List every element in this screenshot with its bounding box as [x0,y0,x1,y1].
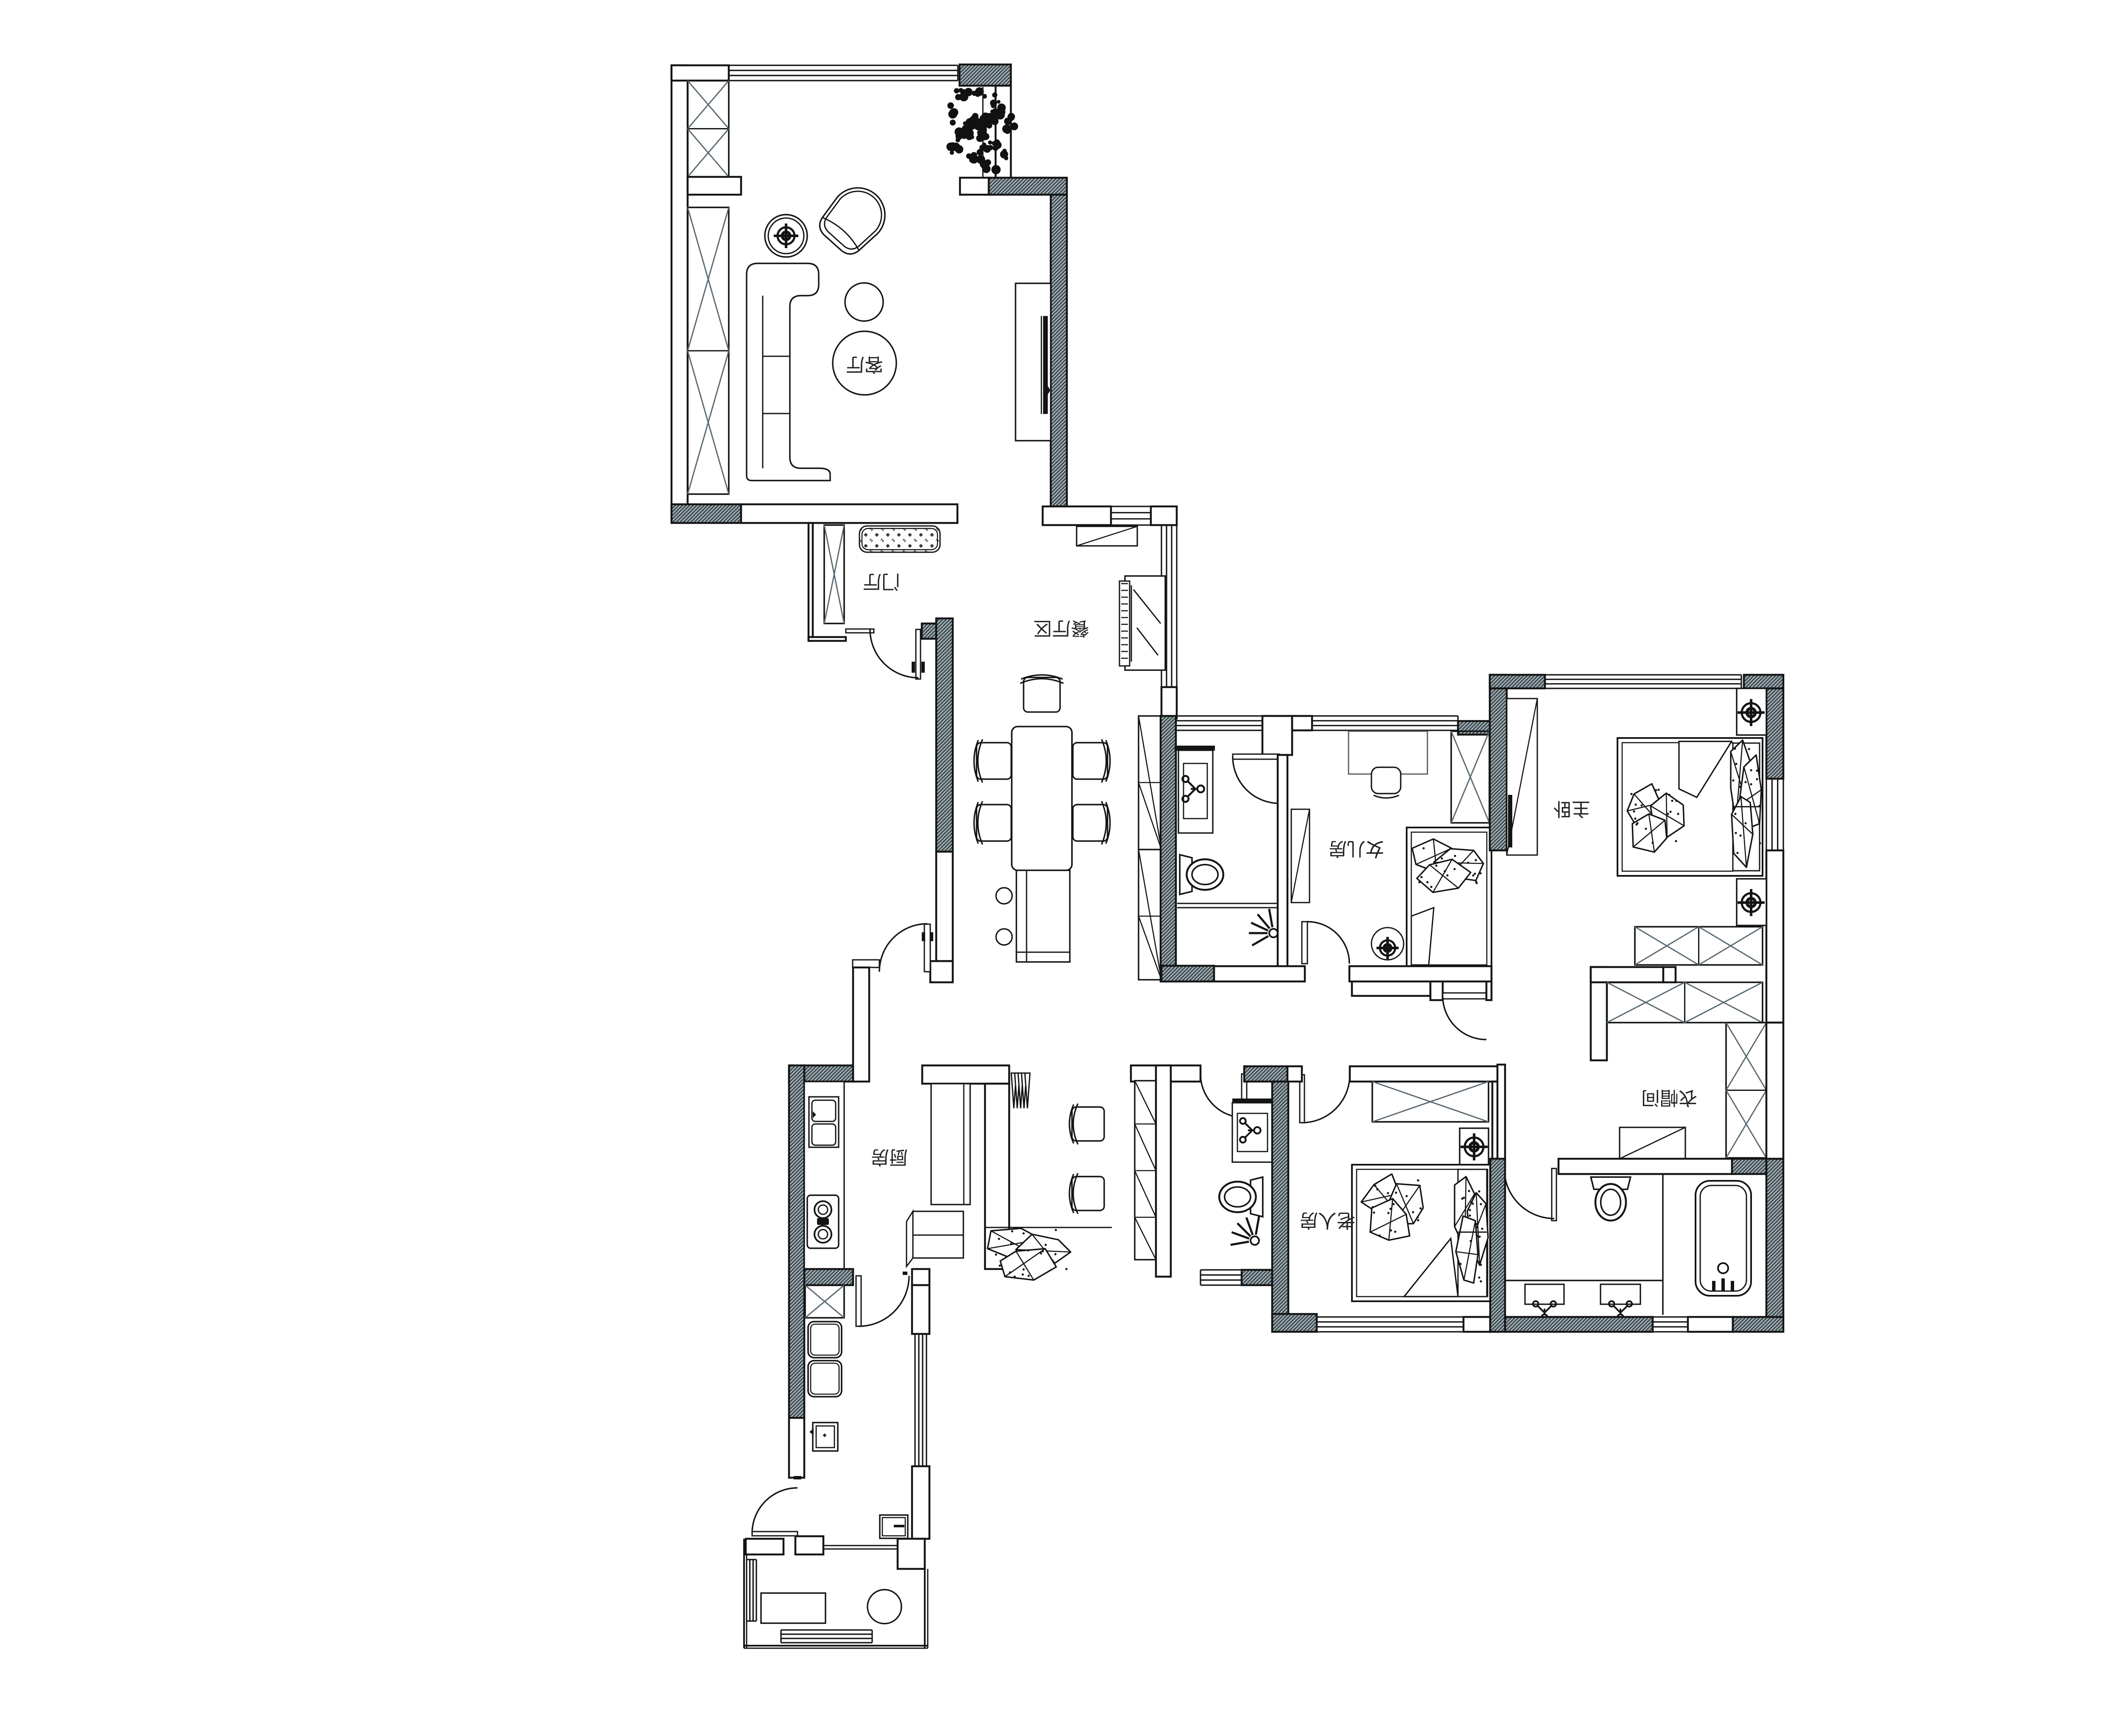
svg-text:女儿房: 女儿房 [1328,838,1384,859]
svg-text:厨房: 厨房 [870,1146,908,1167]
svg-text:餐厅区: 餐厅区 [1033,618,1089,638]
svg-text:客厅: 客厅 [846,354,883,375]
svg-text:主卧: 主卧 [1553,798,1590,819]
svg-text:老人房: 老人房 [1299,1210,1355,1230]
svg-text:门厅: 门厅 [863,571,900,592]
svg-text:衣帽间: 衣帽间 [1641,1087,1697,1108]
